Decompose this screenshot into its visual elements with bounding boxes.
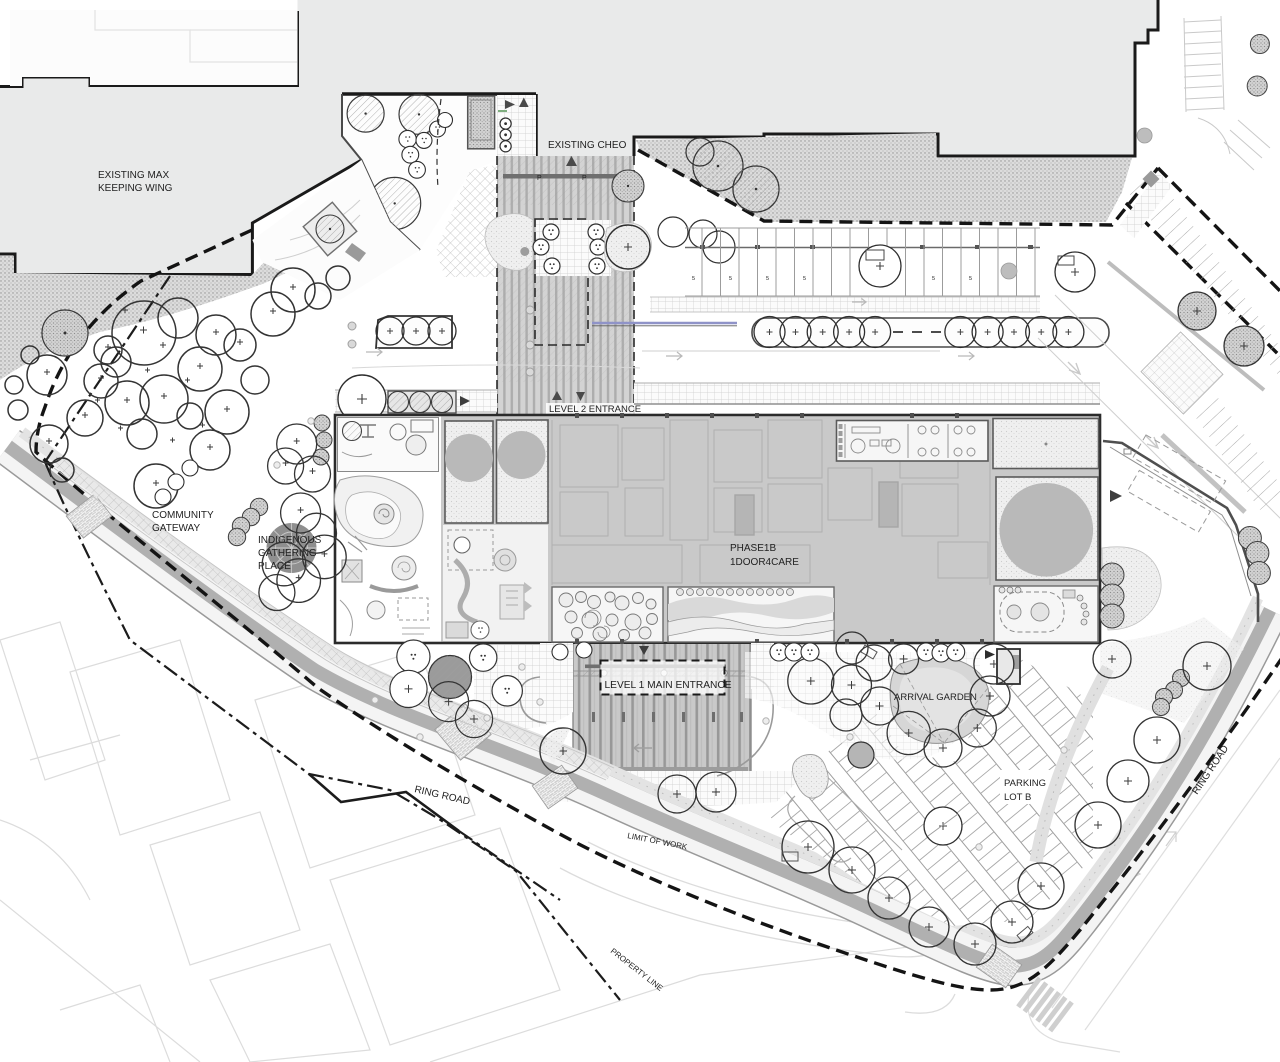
svg-text:KEEPING WING: KEEPING WING xyxy=(98,183,173,194)
svg-text:1DOOR4CARE: 1DOOR4CARE xyxy=(730,557,799,568)
svg-text:5: 5 xyxy=(766,276,769,282)
svg-text:LEVEL 1 MAIN ENTRANCE: LEVEL 1 MAIN ENTRANCE xyxy=(605,680,732,691)
svg-text:5: 5 xyxy=(969,276,972,282)
svg-text:P: P xyxy=(537,175,542,182)
svg-text:EXISTING MAX: EXISTING MAX xyxy=(98,170,169,181)
svg-text:LOT B: LOT B xyxy=(1004,792,1031,803)
svg-text:EXISTING CHEO: EXISTING CHEO xyxy=(548,140,627,151)
svg-text:5: 5 xyxy=(932,276,935,282)
svg-text:COMMUNITY: COMMUNITY xyxy=(152,510,214,521)
svg-text:5: 5 xyxy=(803,276,806,282)
svg-text:GATEWAY: GATEWAY xyxy=(152,523,200,534)
svg-text:INDIGENOUS: INDIGENOUS xyxy=(258,535,322,546)
svg-text:LEVEL 2 ENTRANCE: LEVEL 2 ENTRANCE xyxy=(549,404,641,415)
svg-text:PHASE1B: PHASE1B xyxy=(730,543,776,554)
svg-text:P: P xyxy=(582,175,587,182)
svg-text:ARRIVAL GARDEN: ARRIVAL GARDEN xyxy=(894,692,977,703)
svg-text:5: 5 xyxy=(692,276,695,282)
svg-text:PARKING: PARKING xyxy=(1004,778,1046,789)
svg-text:5: 5 xyxy=(729,276,732,282)
